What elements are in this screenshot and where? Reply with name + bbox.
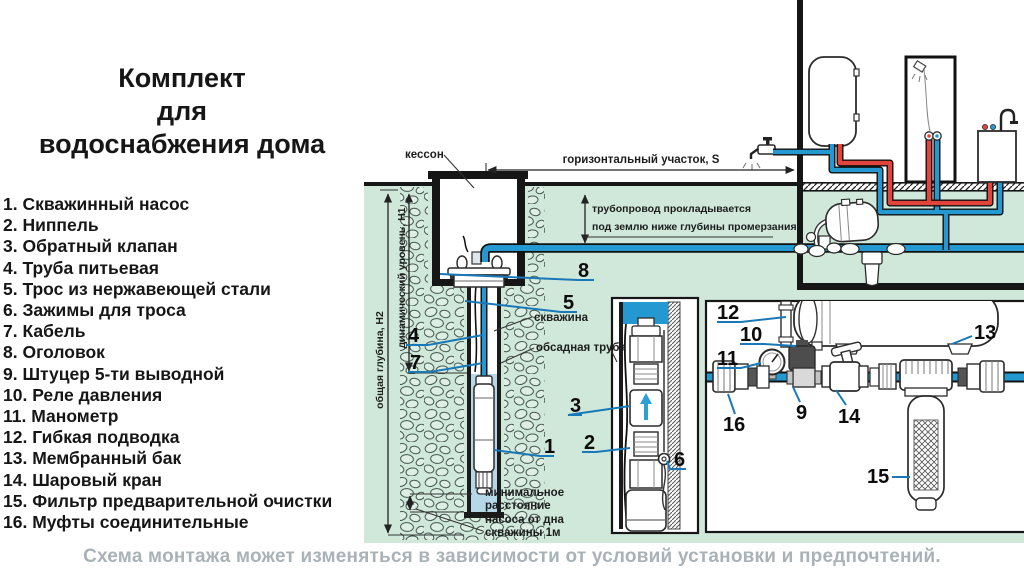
label-min-distance-4: скважины 1м (485, 527, 561, 539)
label-dynamic-level: динамический уровень, Н1 (396, 207, 408, 348)
well (464, 286, 504, 518)
label-horizontal-section: горизонтальный участок, S (563, 154, 720, 166)
callout-8: 8 (578, 260, 589, 282)
title-line-1: Комплект (0, 62, 364, 95)
parts-list-item-16: 16. Муфты соединительные (3, 512, 364, 533)
water-heater (809, 57, 859, 146)
callout-4: 4 (408, 325, 420, 347)
callout-10: 10 (740, 324, 762, 346)
parts-list-item-3: 3. Обратный клапан (3, 236, 364, 257)
footer-note: Схема монтажа может изменяться в зависим… (0, 546, 1024, 568)
faucet-icon (1001, 110, 1014, 131)
label-pipeline-note-2: под землю ниже глубины промерзания (592, 221, 797, 233)
callout-13: 13 (974, 322, 996, 344)
title-line-3: водоснабжения дома (0, 128, 364, 161)
gauge-small (807, 233, 816, 242)
callout-15: 15 (867, 466, 889, 488)
callout-12: 12 (717, 302, 739, 324)
outdoor-tap (743, 137, 775, 170)
parts-list-item-4: 4. Труба питьевая (3, 258, 364, 279)
parts-list-item-11: 11. Манометр (3, 406, 364, 427)
callout-14: 14 (838, 406, 861, 428)
parts-list-item-7: 7. Кабель (3, 321, 364, 342)
ground-surface-right (525, 182, 797, 186)
kitchen-sink (978, 110, 1018, 182)
five-way-fitting (787, 368, 821, 387)
label-well: скважина (534, 312, 589, 324)
parts-list-item-12: 12. Гибкая подводка (3, 427, 364, 448)
title-line-2: для (0, 95, 364, 128)
parts-list-item-6: 6. Зажимы для троса (3, 300, 364, 321)
flexible-hose (779, 301, 793, 347)
callout-16: 16 (723, 414, 745, 436)
parts-list-item-14: 14. Шаровый кран (3, 470, 364, 491)
callout-11: 11 (717, 348, 738, 370)
parts-list-item-8: 8. Оголовок (3, 342, 364, 363)
parts-list-item-9: 9. Штуцер 5-ти выводной (3, 364, 364, 385)
parts-list-item-10: 10. Реле давления (3, 385, 364, 406)
pump-stack (626, 318, 666, 531)
callout-6: 6 (674, 449, 685, 471)
house-basement-beam (797, 283, 1024, 290)
infographic-root: Комплект для водоснабжения дома 1. Скваж… (0, 0, 1024, 576)
page-title: Комплект для водоснабжения дома (0, 62, 364, 161)
label-min-distance-3: насоса от дна (485, 514, 565, 526)
nipple (634, 432, 658, 456)
membrane-tank (794, 292, 998, 354)
callout-9: 9 (796, 402, 807, 424)
parts-list-item-15: 15. Фильтр предварительной очистки (3, 491, 364, 512)
parts-list-item-5: 5. Трос из нержавеющей стали (3, 279, 364, 300)
submersible-pump (474, 376, 494, 494)
parts-list: 1. Скважинный насос 2. Ниппель 3. Обратн… (3, 194, 364, 533)
label-kesson: кессон (405, 149, 444, 161)
callout-7: 7 (410, 352, 421, 374)
adapter-nipple (870, 364, 896, 389)
check-valve (630, 390, 662, 426)
ground-surface-left (364, 182, 432, 186)
label-total-depth: общая глубина, Н2 (374, 311, 386, 409)
callout-3: 3 (570, 395, 581, 417)
pre-filter (900, 360, 952, 510)
label-pipeline-note-1: трубопровод прокладывается (592, 203, 751, 215)
parts-list-item-2: 2. Ниппель (3, 215, 364, 236)
pump-detail-box (612, 298, 698, 533)
callout-5: 5 (563, 292, 574, 314)
parts-list-item-1: 1. Скважинный насос (3, 194, 364, 215)
schematic-diagram: кессон горизонтальный участок, S трубопр… (364, 0, 1024, 576)
callout-1: 1 (544, 436, 555, 458)
callout-2: 2 (584, 432, 595, 454)
parts-list-item-13: 13. Мембранный бак (3, 448, 364, 469)
left-panel: Комплект для водоснабжения дома 1. Скваж… (0, 0, 364, 576)
label-min-distance-1: минимальное (485, 487, 564, 499)
label-min-distance-2: расстояние (485, 500, 551, 512)
label-casing: обсадная труба (536, 342, 626, 354)
